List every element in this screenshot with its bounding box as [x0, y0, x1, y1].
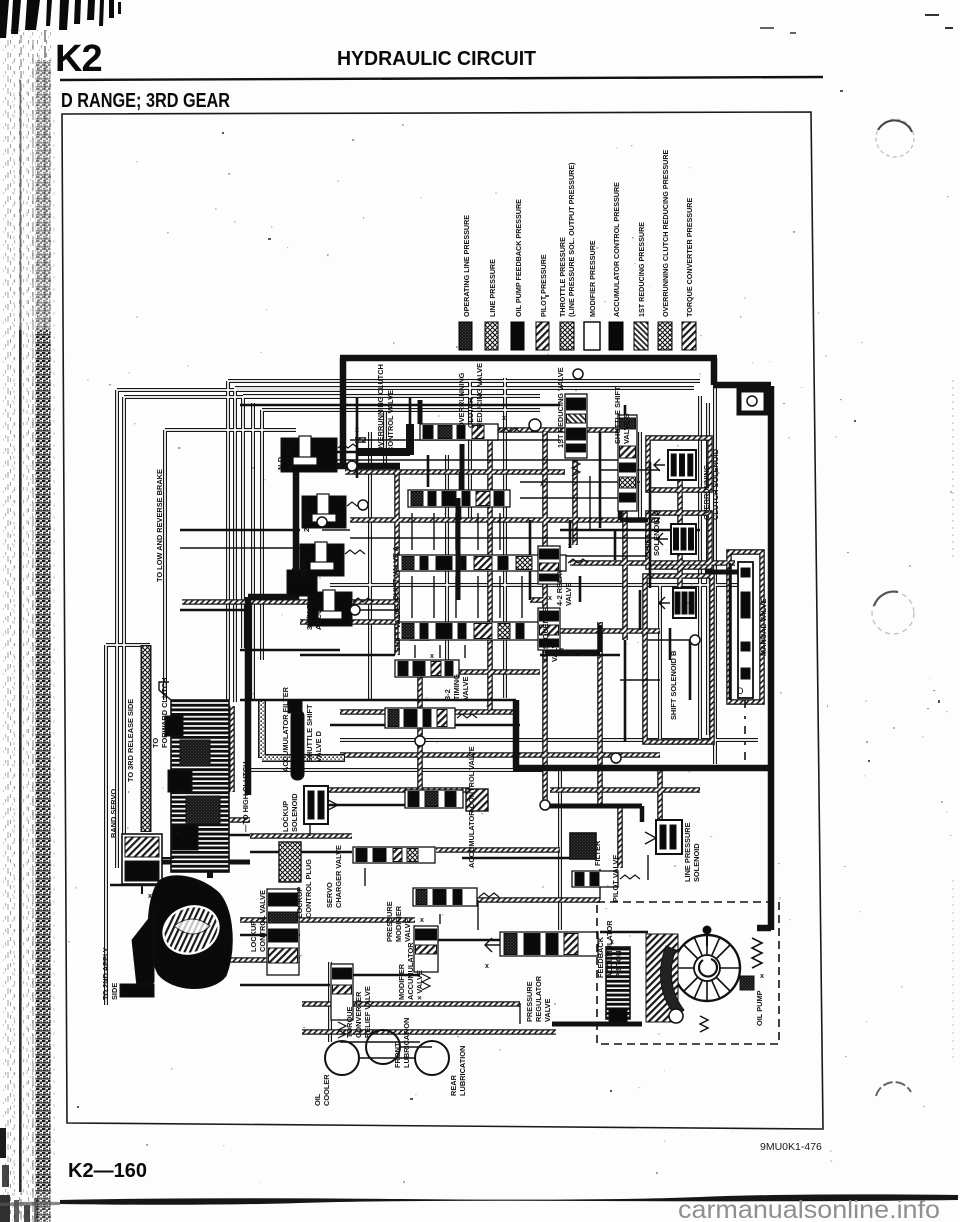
svg-text:ACCUMULATOR: ACCUMULATOR	[605, 920, 614, 978]
svg-text:OVERRUNNING: OVERRUNNING	[702, 464, 711, 520]
svg-text:2-3 ACCU.: 2-3 ACCU.	[302, 496, 311, 532]
svg-text:SHIFT: SHIFT	[643, 534, 652, 556]
svg-text:carmanualsonline.info: carmanualsonline.info	[678, 1196, 940, 1222]
svg-text:MODIFIER: MODIFIER	[394, 905, 403, 942]
svg-text:K2: K2	[55, 38, 102, 80]
svg-text:4-2 SEQUENCE: 4-2 SEQUENCE	[541, 608, 550, 662]
svg-text:x: x	[568, 543, 572, 550]
svg-text:OIL PUMP FEEDBACK PRESSURE: OIL PUMP FEEDBACK PRESSURE	[514, 199, 523, 317]
svg-text:CONTROL VALVE: CONTROL VALVE	[386, 390, 395, 452]
svg-text:TO 2ND APPLY: TO 2ND APPLY	[101, 947, 110, 1000]
svg-text:LUBRICATION: LUBRICATION	[458, 1046, 467, 1096]
svg-text:OVERRUNNING CLUTCH REDUCING PR: OVERRUNNING CLUTCH REDUCING PRESSURE	[661, 149, 670, 317]
svg-text:REAR: REAR	[449, 1074, 458, 1096]
svg-text:OIL PUMP: OIL PUMP	[755, 990, 764, 1026]
svg-text:REGULATOR: REGULATOR	[534, 975, 543, 1022]
svg-text:TORQUE CONVERTER PRESSURE: TORQUE CONVERTER PRESSURE	[685, 198, 694, 317]
svg-text:ACCUMULATOR CONTROL PRESSURE: ACCUMULATOR CONTROL PRESSURE	[612, 182, 621, 317]
svg-text:SHIFT VALVE A: SHIFT VALVE A	[391, 545, 400, 600]
svg-text:ACCUMULATOR CONTROL VALVE: ACCUMULATOR CONTROL VALVE	[467, 746, 476, 868]
svg-text:TO: TO	[151, 738, 160, 748]
svg-text:x: x	[430, 653, 434, 660]
svg-text:LINE PRESSURE: LINE PRESSURE	[488, 259, 497, 317]
svg-text:N-D: N-D	[276, 456, 285, 470]
svg-text:FILTER: FILTER	[593, 840, 602, 866]
svg-text:PRESSURE: PRESSURE	[385, 901, 394, 942]
svg-text:TORQUE: TORQUE	[345, 1006, 354, 1038]
svg-text:x: x	[548, 595, 552, 602]
svg-text:OVERRUNNING CLUTCH: OVERRUNNING CLUTCH	[376, 364, 385, 452]
svg-text:VALVE D: VALVE D	[314, 730, 323, 762]
svg-text:x: x	[560, 647, 564, 654]
svg-text:TO 3RD RELEASE SIDE: TO 3RD RELEASE SIDE	[126, 699, 135, 782]
svg-text:TIMING: TIMING	[452, 674, 461, 700]
svg-text:PISTON: PISTON	[614, 951, 623, 978]
svg-text:LOCKUP: LOCKUP	[281, 801, 290, 832]
svg-text:VALVE: VALVE	[564, 582, 573, 606]
svg-text:x: x	[485, 963, 489, 970]
svg-text:SHIFT SOLENOID B: SHIFT SOLENOID B	[669, 651, 678, 720]
svg-text:FRONT: FRONT	[393, 1042, 402, 1068]
svg-text:x: x	[355, 427, 359, 434]
svg-text:FEEDBACK: FEEDBACK	[596, 936, 605, 978]
svg-text:MODIFIER: MODIFIER	[397, 963, 406, 1000]
svg-text:OPERATING LINE PRESSURE: OPERATING LINE PRESSURE	[462, 215, 471, 317]
svg-text:SHUTTLE SHIFT: SHUTTLE SHIFT	[613, 386, 622, 444]
svg-text:ACCU.: ACCU.	[314, 607, 323, 630]
svg-text:3-2: 3-2	[443, 689, 452, 700]
svg-text:MANUAL VALVE: MANUAL VALVE	[759, 598, 768, 656]
svg-text:LINE PRESSURE: LINE PRESSURE	[683, 822, 692, 882]
svg-text:BAND SERVO: BAND SERVO	[109, 789, 118, 838]
svg-text:LOCKUP: LOCKUP	[249, 921, 258, 952]
svg-text:THROTTLE PRESSURE: THROTTLE PRESSURE	[558, 237, 567, 317]
svg-text:TO LOW AND REVERSE BRAKE: TO LOW AND REVERSE BRAKE	[155, 469, 164, 582]
svg-text:4-2 RELAY: 4-2 RELAY	[555, 569, 564, 606]
svg-text:SOLENOID A: SOLENOID A	[652, 510, 661, 556]
svg-text:FORWARD CLUTCH: FORWARD CLUTCH	[160, 678, 169, 748]
svg-text:CONTROL VALVE: CONTROL VALVE	[258, 890, 267, 952]
svg-text:RELIEF VALVE: RELIEF VALVE	[363, 986, 372, 1038]
svg-text:OVERRUNNING: OVERRUNNING	[457, 372, 466, 428]
svg-text:OIL: OIL	[313, 1093, 322, 1106]
svg-text:SOLENOID: SOLENOID	[692, 843, 701, 882]
svg-text:3-4(N-R): 3-4(N-R)	[305, 601, 314, 630]
svg-text:1-2: 1-2	[290, 567, 299, 578]
svg-text:× VALVE: × VALVE	[415, 970, 424, 1000]
svg-text:x: x	[610, 939, 614, 946]
svg-text:CONTROL PLUG: CONTROL PLUG	[304, 859, 313, 918]
svg-text:x: x	[502, 415, 506, 422]
svg-text:x: x	[760, 973, 764, 980]
svg-text:SHIFT VALVE B: SHIFT VALVE B	[393, 598, 402, 652]
svg-text:ACCUMULATOR FILTER: ACCUMULATOR FILTER	[281, 686, 290, 772]
svg-text:x: x	[540, 481, 544, 488]
svg-text:SOLENOID: SOLENOID	[290, 793, 299, 832]
svg-text:PILOT VALVE: PILOT VALVE	[611, 855, 620, 902]
svg-text:PRESSURE: PRESSURE	[525, 981, 534, 1022]
svg-text:LOCKUP: LOCKUP	[295, 887, 304, 918]
svg-text:1ST REDUCING PRESSURE: 1ST REDUCING PRESSURE	[637, 222, 646, 317]
svg-text:CLUTCH SOLENOID: CLUTCH SOLENOID	[711, 448, 720, 520]
svg-text:(LINE PRESSURE SOL. OUTPUT PRE: (LINE PRESSURE SOL. OUTPUT PRESSURE)	[567, 162, 576, 317]
svg-text:CLUTCH: CLUTCH	[466, 398, 475, 428]
svg-text:VALVE: VALVE	[543, 998, 552, 1022]
svg-text:LUBRICATION: LUBRICATION	[402, 1018, 411, 1068]
svg-text:ACCUMULATOR: ACCUMULATOR	[406, 942, 415, 1000]
svg-text:—TO HIGH CLUTCH: —TO HIGH CLUTCH	[241, 762, 250, 832]
svg-text:ACCU.: ACCU.	[299, 555, 308, 578]
svg-text:ACCU.: ACCU.	[285, 447, 294, 470]
svg-text:1ST REDUCING VALVE: 1ST REDUCING VALVE	[556, 367, 565, 448]
svg-text:K2—160: K2—160	[68, 1160, 147, 1182]
svg-text:VALVE: VALVE	[403, 918, 412, 942]
svg-text:REDUCING VALVE: REDUCING VALVE	[475, 363, 484, 428]
svg-text:SHUTTLE SHIFT: SHUTTLE SHIFT	[305, 704, 314, 762]
svg-text:COOLER: COOLER	[322, 1074, 331, 1106]
svg-text:PILOT PRESSURE: PILOT PRESSURE	[539, 254, 548, 317]
svg-text:VALVE: VALVE	[461, 676, 470, 700]
svg-text:CONVERTER: CONVERTER	[354, 991, 363, 1038]
svg-text:CHARGER VALVE: CHARGER VALVE	[334, 845, 343, 908]
svg-text:x: x	[420, 917, 424, 924]
svg-text:VALVE: VALVE	[550, 638, 559, 662]
svg-text:SIDE: SIDE	[110, 983, 119, 1000]
svg-text:VALVE S: VALVE S	[622, 413, 631, 444]
svg-text:D RANGE; 3RD GEAR: D RANGE; 3RD GEAR	[61, 90, 230, 112]
svg-text:SERVO: SERVO	[325, 882, 334, 908]
svg-text:x: x	[148, 893, 152, 900]
svg-text:HYDRAULIC CIRCUIT: HYDRAULIC CIRCUIT	[337, 48, 536, 70]
svg-text:MODIFIER PRESSURE: MODIFIER PRESSURE	[588, 240, 597, 317]
